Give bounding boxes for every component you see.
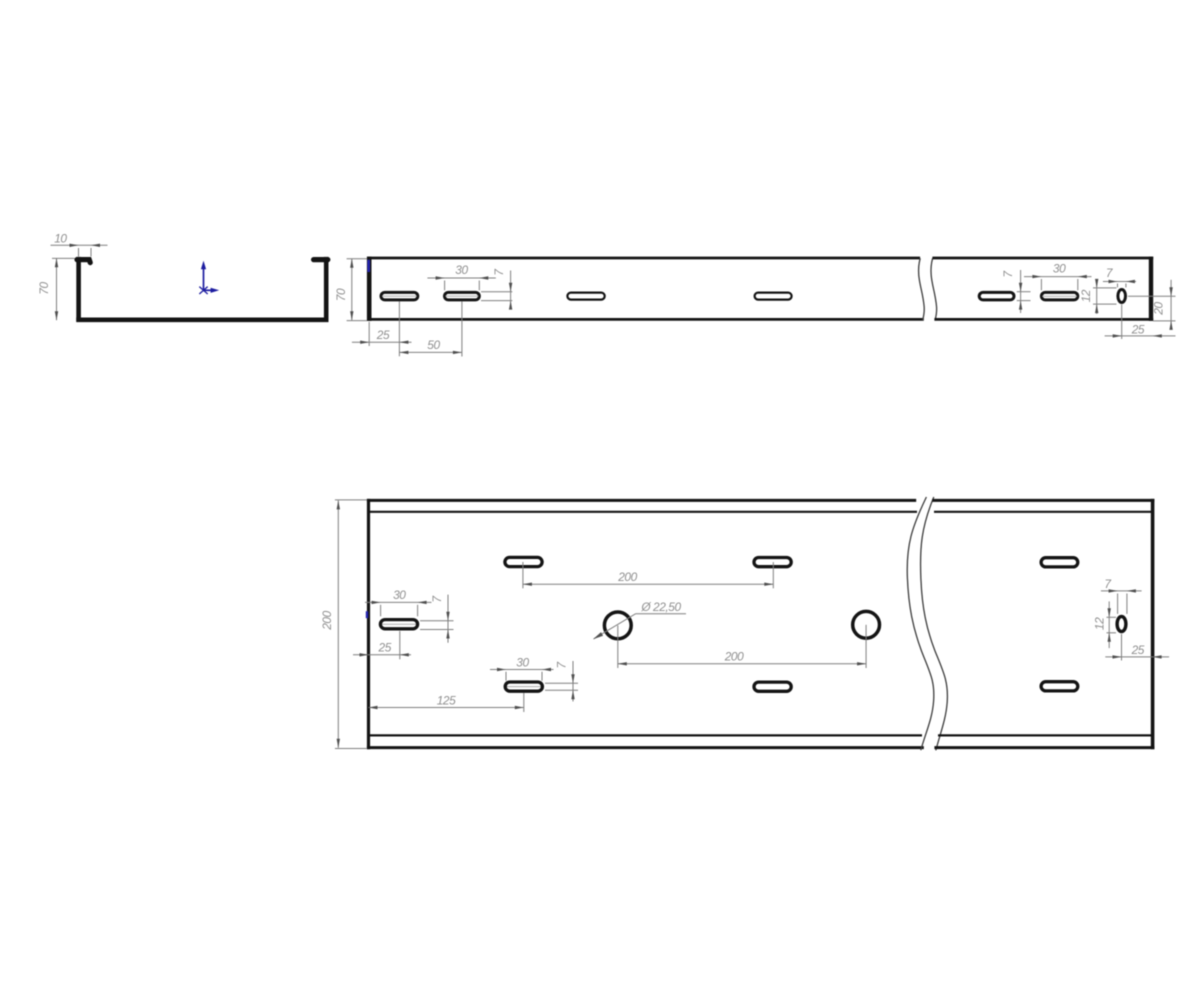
svg-text:10: 10 [54, 231, 67, 245]
svg-text:7: 7 [1001, 271, 1015, 278]
svg-text:125: 125 [437, 693, 456, 707]
svg-text:30: 30 [1053, 262, 1066, 276]
svg-text:50: 50 [427, 338, 440, 352]
svg-text:12: 12 [1093, 617, 1107, 630]
svg-text:30: 30 [455, 263, 468, 277]
svg-text:7: 7 [430, 596, 444, 603]
svg-text:30: 30 [516, 656, 529, 670]
svg-text:200: 200 [724, 650, 744, 664]
svg-text:Ø 22,50: Ø 22,50 [640, 600, 681, 614]
svg-text:25: 25 [1131, 322, 1145, 336]
svg-text:7: 7 [1106, 266, 1113, 280]
svg-text:30: 30 [393, 588, 406, 602]
svg-text:25: 25 [1131, 643, 1145, 657]
svg-text:70: 70 [37, 282, 51, 295]
svg-text:25: 25 [378, 641, 392, 655]
svg-text:200: 200 [320, 610, 334, 630]
svg-text:7: 7 [492, 269, 506, 276]
svg-text:12: 12 [1079, 289, 1093, 302]
svg-text:7: 7 [554, 662, 568, 669]
svg-text:20: 20 [1151, 302, 1165, 316]
svg-text:200: 200 [617, 570, 637, 584]
svg-text:70: 70 [334, 288, 348, 301]
svg-text:7: 7 [1104, 577, 1111, 591]
svg-text:25: 25 [376, 328, 390, 342]
